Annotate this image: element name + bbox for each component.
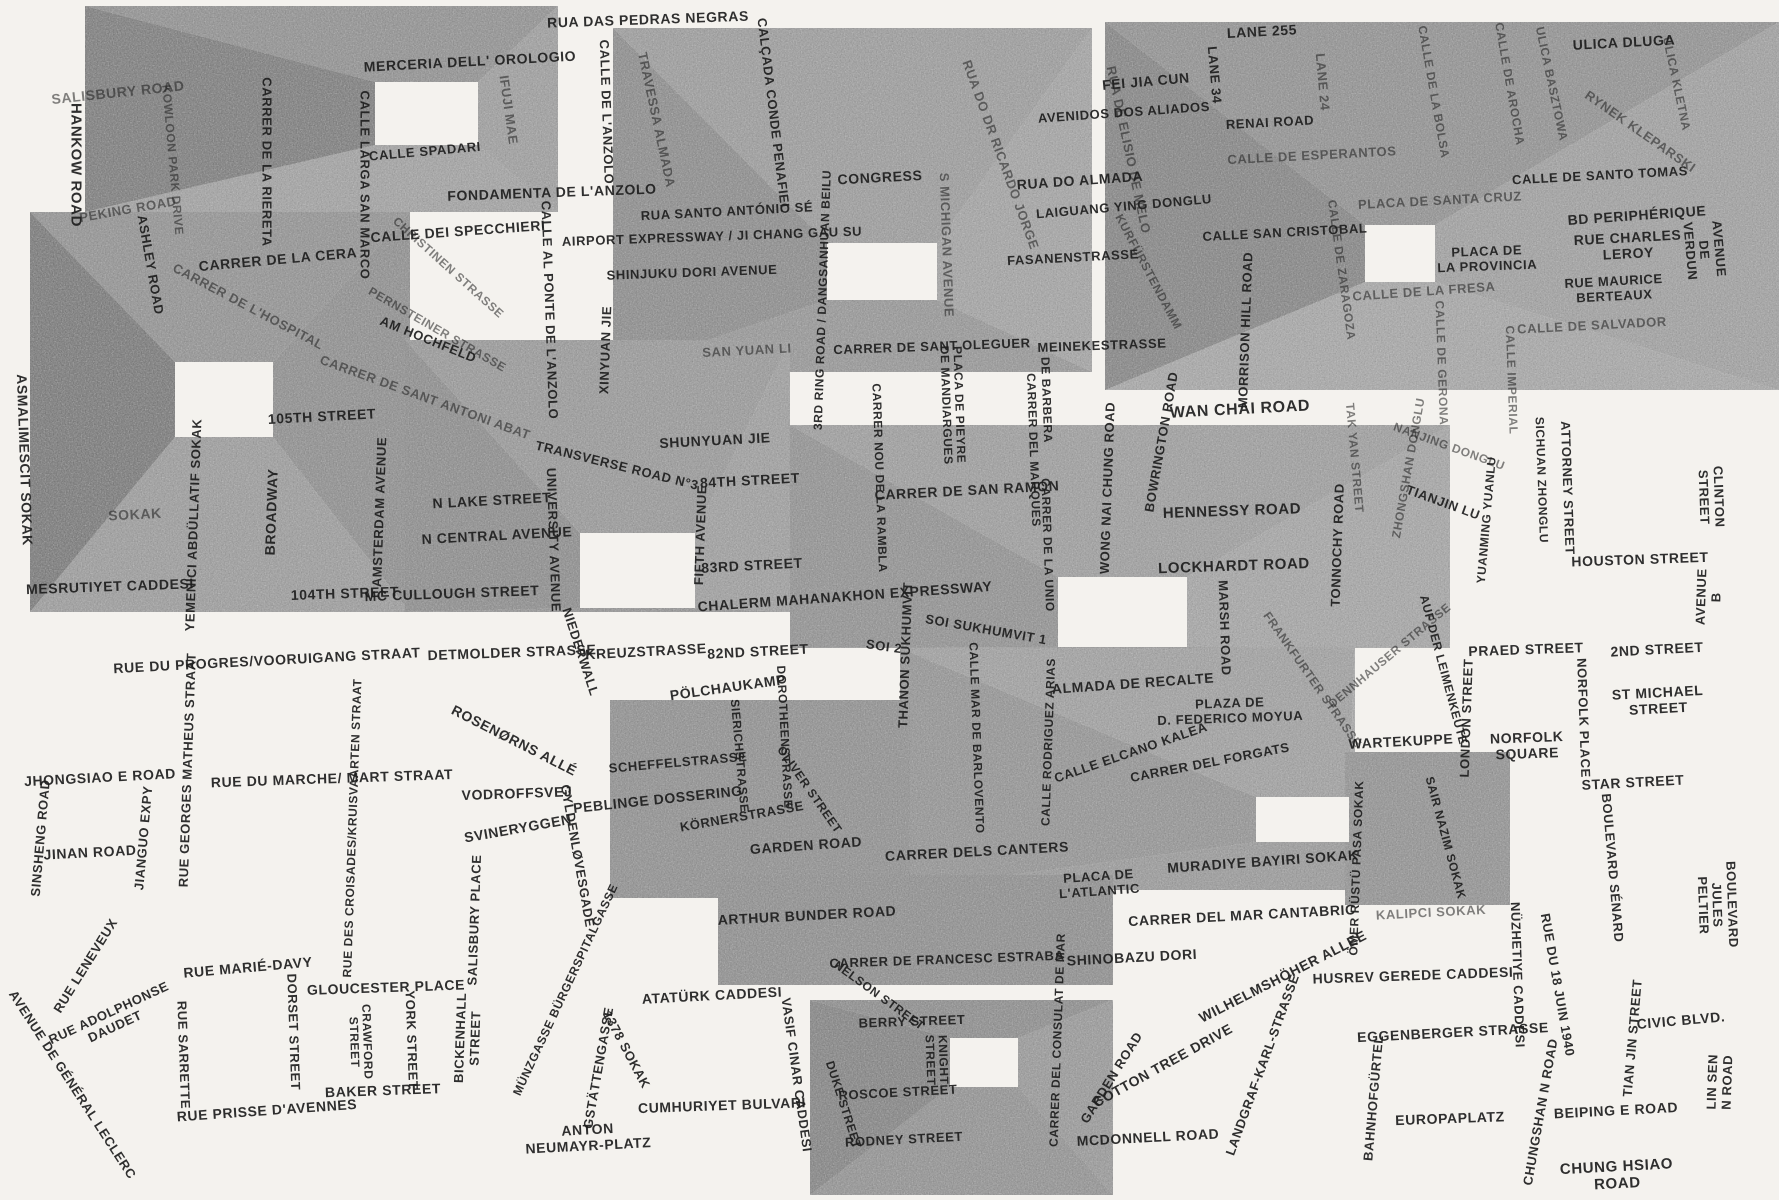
- street-label: DORSET STREET: [284, 973, 303, 1090]
- street-label: PLACA DE L'ATLANTIC: [1058, 867, 1141, 902]
- block-wan-chai-center-void: [1058, 577, 1187, 647]
- street-label: AVENUE B: [1693, 562, 1725, 633]
- block-manhattan-beijing-center-void: [580, 533, 695, 608]
- street-label: DE BARBERA: [1038, 357, 1054, 443]
- street-label: NORFOLK SQUARE: [1490, 729, 1564, 763]
- street-label: CARRER DE LA RIERETA: [259, 77, 274, 246]
- street-label: RUE SARRETTE: [174, 1001, 192, 1110]
- street-label: CALLE IMPERIAL: [1502, 325, 1519, 434]
- street-label: KNIGHT STREET: [922, 1034, 951, 1086]
- street-label: ANTON NEUMAYR-PLATZ: [524, 1119, 651, 1157]
- street-label: AVENUE DE VERDUN: [1679, 211, 1729, 290]
- block-bilbao-center-void: [1256, 797, 1349, 842]
- street-label: ST MICHAEL STREET: [1597, 682, 1719, 720]
- street-label: YORK STREET: [402, 990, 420, 1090]
- block-liverpool-hongkong-center-void: [950, 1038, 1018, 1087]
- block-lisbon-tokyo-center-void: [827, 243, 937, 300]
- artwork-canvas: SALISBURY ROADHANKOW ROADPEKING ROADKOWL…: [0, 0, 1779, 1200]
- street-label: BOULEVARD JULES PELTIER: [1694, 861, 1741, 949]
- street-label: LIN SEN N ROAD: [1704, 1052, 1735, 1112]
- street-label: HANKOW ROAD: [67, 103, 84, 227]
- street-label: BICKENHALL STREET: [452, 992, 484, 1083]
- street-label: PLACA DE PIEYRE DE MANDIARGUES: [936, 345, 967, 465]
- street-label: PLACA DE LA PROVINCIA: [1437, 243, 1538, 276]
- block-tsimshatsui-venice-center-void: [375, 82, 478, 145]
- street-label: NORFOLK PLACE: [1574, 658, 1593, 778]
- street-label: MARSH ROAD: [1215, 580, 1233, 676]
- street-label: CRAWFORD STREET: [345, 1004, 374, 1080]
- street-label: CLINTON STREET: [1695, 463, 1726, 532]
- street-label: XINYUAN JIE: [597, 306, 615, 395]
- street-label: SOKAK: [108, 506, 162, 524]
- street-label: CALLE LARGA SAN MARCO: [357, 90, 372, 279]
- street-label: PLAZA DE D. FEDERICO MOYUA: [1157, 694, 1304, 728]
- block-krakow-madrid-center-void: [1365, 225, 1435, 282]
- street-label: BROADWAY: [263, 468, 282, 555]
